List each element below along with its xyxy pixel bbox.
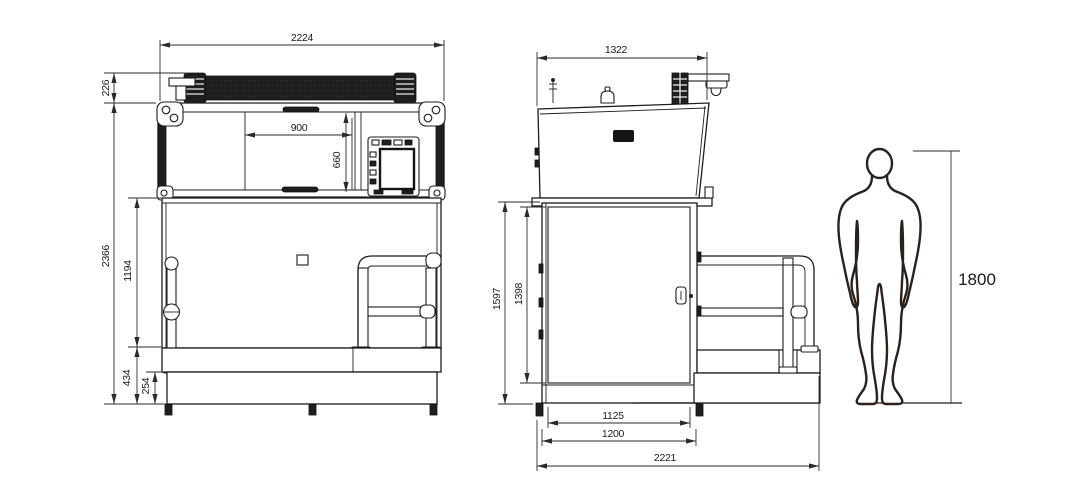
dim-label: 660	[331, 151, 343, 168]
dim-front-overall-height: 2366	[100, 103, 165, 404]
dim-front-plinth-height: 254	[140, 372, 166, 404]
dim-label: 1125	[602, 410, 624, 422]
foot	[696, 403, 703, 416]
hinge	[539, 298, 543, 307]
side-hood	[532, 73, 729, 206]
dim-label: 1200	[602, 428, 625, 440]
roller-bracket	[169, 78, 195, 86]
human-body-outline	[838, 175, 920, 405]
beacon-light	[601, 87, 614, 103]
hinge	[539, 264, 543, 273]
side-cabinet	[536, 203, 703, 416]
control-panel	[368, 137, 419, 196]
technical-drawing-canvas: 2224 226 2366 1194 434	[0, 0, 1069, 500]
dim-label: 2221	[654, 452, 677, 464]
dim-label: 2224	[291, 32, 314, 44]
hood-latch	[705, 187, 713, 198]
hood-label	[613, 130, 634, 142]
dim-side-base-width: 1200	[542, 428, 696, 446]
camera-body	[706, 81, 727, 88]
dim-human-height: 1800	[913, 151, 996, 403]
railing-collar	[791, 306, 807, 318]
roller-end-cap-right	[394, 73, 416, 103]
dim-label: 1800	[958, 270, 996, 289]
dim-label: 1597	[491, 287, 503, 310]
dim-label: 900	[291, 122, 308, 134]
dim-label: 434	[121, 369, 133, 386]
human-head	[867, 149, 892, 178]
case-right-extrusion	[436, 121, 444, 193]
foot	[309, 404, 316, 415]
body-small-port	[297, 255, 308, 265]
dim-front-base-height: 434	[121, 347, 137, 404]
case-handle-bottom	[282, 187, 318, 192]
touchscreen	[380, 149, 414, 189]
front-lower-body	[162, 198, 441, 373]
step-upper	[697, 350, 820, 373]
base-plinth	[167, 372, 437, 404]
roller-brush-body	[205, 76, 395, 100]
body-outline	[162, 198, 441, 348]
front-base	[162, 348, 441, 415]
base-upper	[162, 348, 441, 372]
camera-arm	[672, 73, 729, 104]
case-left-extrusion	[158, 121, 166, 193]
front-upper-case	[157, 102, 445, 200]
dim-label: 1322	[605, 44, 628, 56]
foot	[430, 404, 437, 415]
dim-side-base-inner-width: 1125	[548, 407, 690, 428]
railing-mid-bar	[697, 308, 783, 316]
front-roller-brush	[169, 73, 416, 103]
railing-collar-top	[426, 253, 441, 268]
hinge	[539, 330, 543, 339]
foot	[536, 403, 543, 416]
dim-side-door-height: 1398	[513, 207, 546, 383]
case-handle-top	[283, 107, 319, 112]
railing-wall-bracket	[697, 252, 701, 262]
cabinet-door	[548, 207, 690, 383]
antenna	[549, 79, 557, 104]
dim-label: 226	[100, 79, 112, 96]
dim-label: 1398	[513, 282, 525, 305]
camera-bracket	[688, 74, 729, 81]
railing-collar-mid	[420, 305, 435, 318]
door-lock	[689, 294, 693, 298]
camera-lens	[711, 88, 721, 96]
dim-label: 2366	[100, 244, 112, 267]
dim-label: 254	[140, 377, 152, 394]
railing-wall-bracket	[697, 306, 701, 316]
side-view	[532, 73, 820, 416]
human-figure	[838, 149, 962, 404]
railing-top-bar	[697, 256, 814, 346]
foot	[165, 404, 172, 415]
dim-label: 1194	[122, 260, 134, 282]
step-lower	[694, 373, 820, 403]
dim-front-lower-body-height: 1194	[122, 198, 161, 347]
